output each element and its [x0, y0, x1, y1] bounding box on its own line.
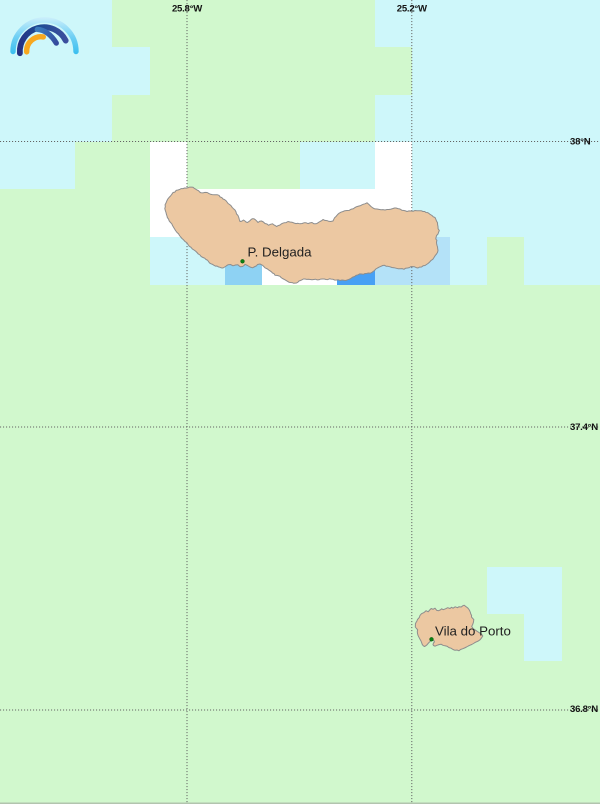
svg-text:37.4°N: 37.4°N — [570, 422, 598, 433]
svg-text:25.2°W: 25.2°W — [397, 3, 428, 14]
svg-text:36.8°N: 36.8°N — [570, 704, 598, 715]
svg-text:38°N: 38°N — [570, 137, 591, 148]
svg-text:P. Delgada: P. Delgada — [248, 245, 313, 260]
svg-text:Vila do Porto: Vila do Porto — [435, 624, 511, 639]
svg-text:25.8°W: 25.8°W — [172, 3, 203, 14]
